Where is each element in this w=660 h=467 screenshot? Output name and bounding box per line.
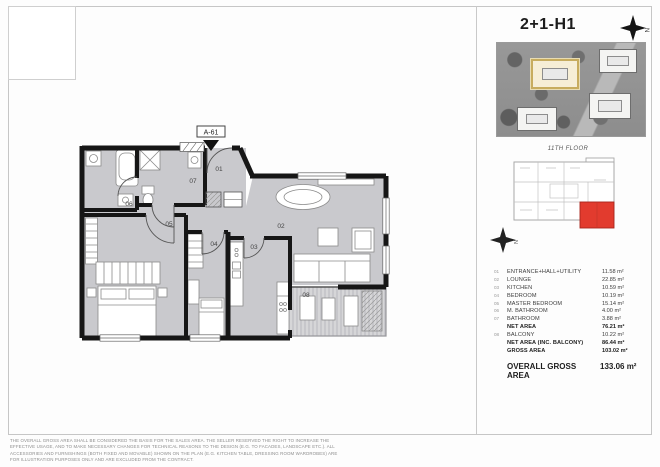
unit-code-label: A-61	[204, 130, 219, 137]
row-index: 08	[494, 332, 507, 337]
plan-sheet: 01 02 03 04 05 06 07 08 A-61 2+1-H1 N 11…	[0, 0, 660, 467]
room-number-label: 07	[189, 178, 197, 185]
area-schedule-table: 01ENTRANCE+HALL+UTILITY11.58 m² 02LOUNGE…	[494, 269, 652, 381]
room-number-label: 06	[125, 201, 133, 208]
table-row: 03KITCHEN10.59 m²	[494, 285, 652, 293]
row-name: NET AREA (INC. BALCONY)	[507, 340, 602, 346]
row-value: 15.14 m²	[602, 301, 652, 307]
row-index: 07	[494, 316, 507, 321]
table-row-net-area: NET AREA76.21 m²	[494, 324, 652, 332]
floor-plan: 01 02 03 04 05 06 07 08 A-61	[0, 0, 480, 440]
row-name: BALCONY	[507, 332, 602, 338]
row-value: 10.22 m²	[602, 332, 652, 338]
table-row: 04BEDROOM10.19 m²	[494, 293, 652, 301]
row-index: 04	[494, 293, 507, 298]
row-index: 01	[494, 269, 507, 274]
row-name: BATHROOM	[507, 316, 602, 322]
row-index: 03	[494, 285, 507, 290]
table-row: 08BALCONY10.22 m²	[494, 332, 652, 340]
row-value: 3.88 m²	[602, 316, 652, 322]
floor-key-plan	[508, 156, 628, 240]
key-plan-north-arrow-icon: N	[490, 226, 520, 256]
row-name: MASTER BEDROOM	[507, 301, 602, 307]
table-row-net-area-inc-balcony: NET AREA (INC. BALCONY)86.44 m²	[494, 340, 652, 348]
row-value: 76.21 m²	[602, 324, 652, 330]
row-name: NET AREA	[507, 324, 602, 330]
north-letter: N	[512, 240, 518, 244]
row-name: ENTRANCE+HALL+UTILITY	[507, 269, 602, 275]
room-number-label: 01	[215, 166, 223, 173]
table-row: 06M. BATHROOM4.00 m²	[494, 308, 652, 316]
row-value: 86.44 m²	[602, 340, 652, 346]
row-name: KITCHEN	[507, 285, 602, 291]
table-row: 01ENTRANCE+HALL+UTILITY11.58 m²	[494, 269, 652, 277]
room-number-label: 03	[250, 244, 258, 251]
row-value: 22.85 m²	[602, 277, 652, 283]
building-footprint	[517, 107, 557, 131]
overall-value: 133.06 m²	[600, 362, 636, 381]
overall-label: OVERALL GROSS AREA	[507, 362, 600, 381]
row-value: 10.19 m²	[602, 293, 652, 299]
site-aerial-photo	[496, 42, 646, 137]
room-number-label: 04	[210, 241, 218, 248]
row-value: 4.00 m²	[602, 308, 652, 314]
row-index: 06	[494, 308, 507, 313]
row-index: 02	[494, 277, 507, 282]
disclaimer-text: THE OVERALL GROSS AREA SHALL BE CONSIDER…	[10, 438, 342, 464]
building-footprint	[589, 93, 631, 119]
row-value: 11.58 m²	[602, 269, 652, 275]
disclaimer-line-2: ACCESSORIES AND FURNISHINGS (BOTH FIXED …	[10, 451, 342, 464]
room-number-label: 05	[165, 221, 173, 228]
room-number-label: 08	[302, 292, 310, 299]
building-footprint-highlighted	[531, 59, 579, 89]
unit-type-title: 2+1-H1	[478, 16, 618, 34]
room-number-label: 02	[277, 223, 285, 230]
floor-key-title: 11TH FLOOR	[508, 146, 628, 152]
table-row-gross-area: GROSS AREA103.02 m²	[494, 348, 652, 356]
row-name: M. BATHROOM	[507, 308, 602, 314]
north-arrow-icon: N	[620, 14, 652, 44]
row-value: 10.59 m²	[602, 285, 652, 291]
row-index: 05	[494, 301, 507, 306]
overall-gross-area-row: OVERALL GROSS AREA 133.06 m²	[494, 362, 652, 381]
table-row: 05MASTER BEDROOM15.14 m²	[494, 301, 652, 309]
table-row: 07BATHROOM3.88 m²	[494, 316, 652, 324]
building-footprint	[599, 49, 637, 73]
row-name: BEDROOM	[507, 293, 602, 299]
table-row: 02LOUNGE22.85 m²	[494, 277, 652, 285]
north-letter: N	[643, 28, 649, 32]
row-name: LOUNGE	[507, 277, 602, 283]
row-value: 103.02 m²	[602, 348, 652, 354]
disclaimer-line-1: THE OVERALL GROSS AREA SHALL BE CONSIDER…	[10, 438, 342, 451]
row-name: GROSS AREA	[507, 348, 602, 354]
